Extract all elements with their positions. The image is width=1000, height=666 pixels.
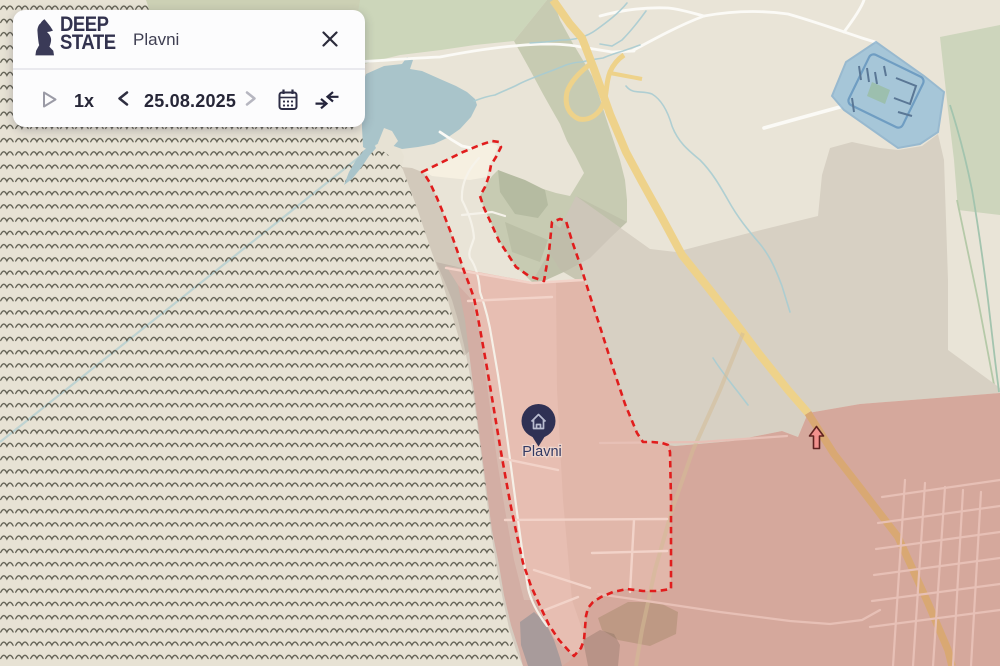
svg-text:Plavni: Plavni	[522, 444, 562, 460]
